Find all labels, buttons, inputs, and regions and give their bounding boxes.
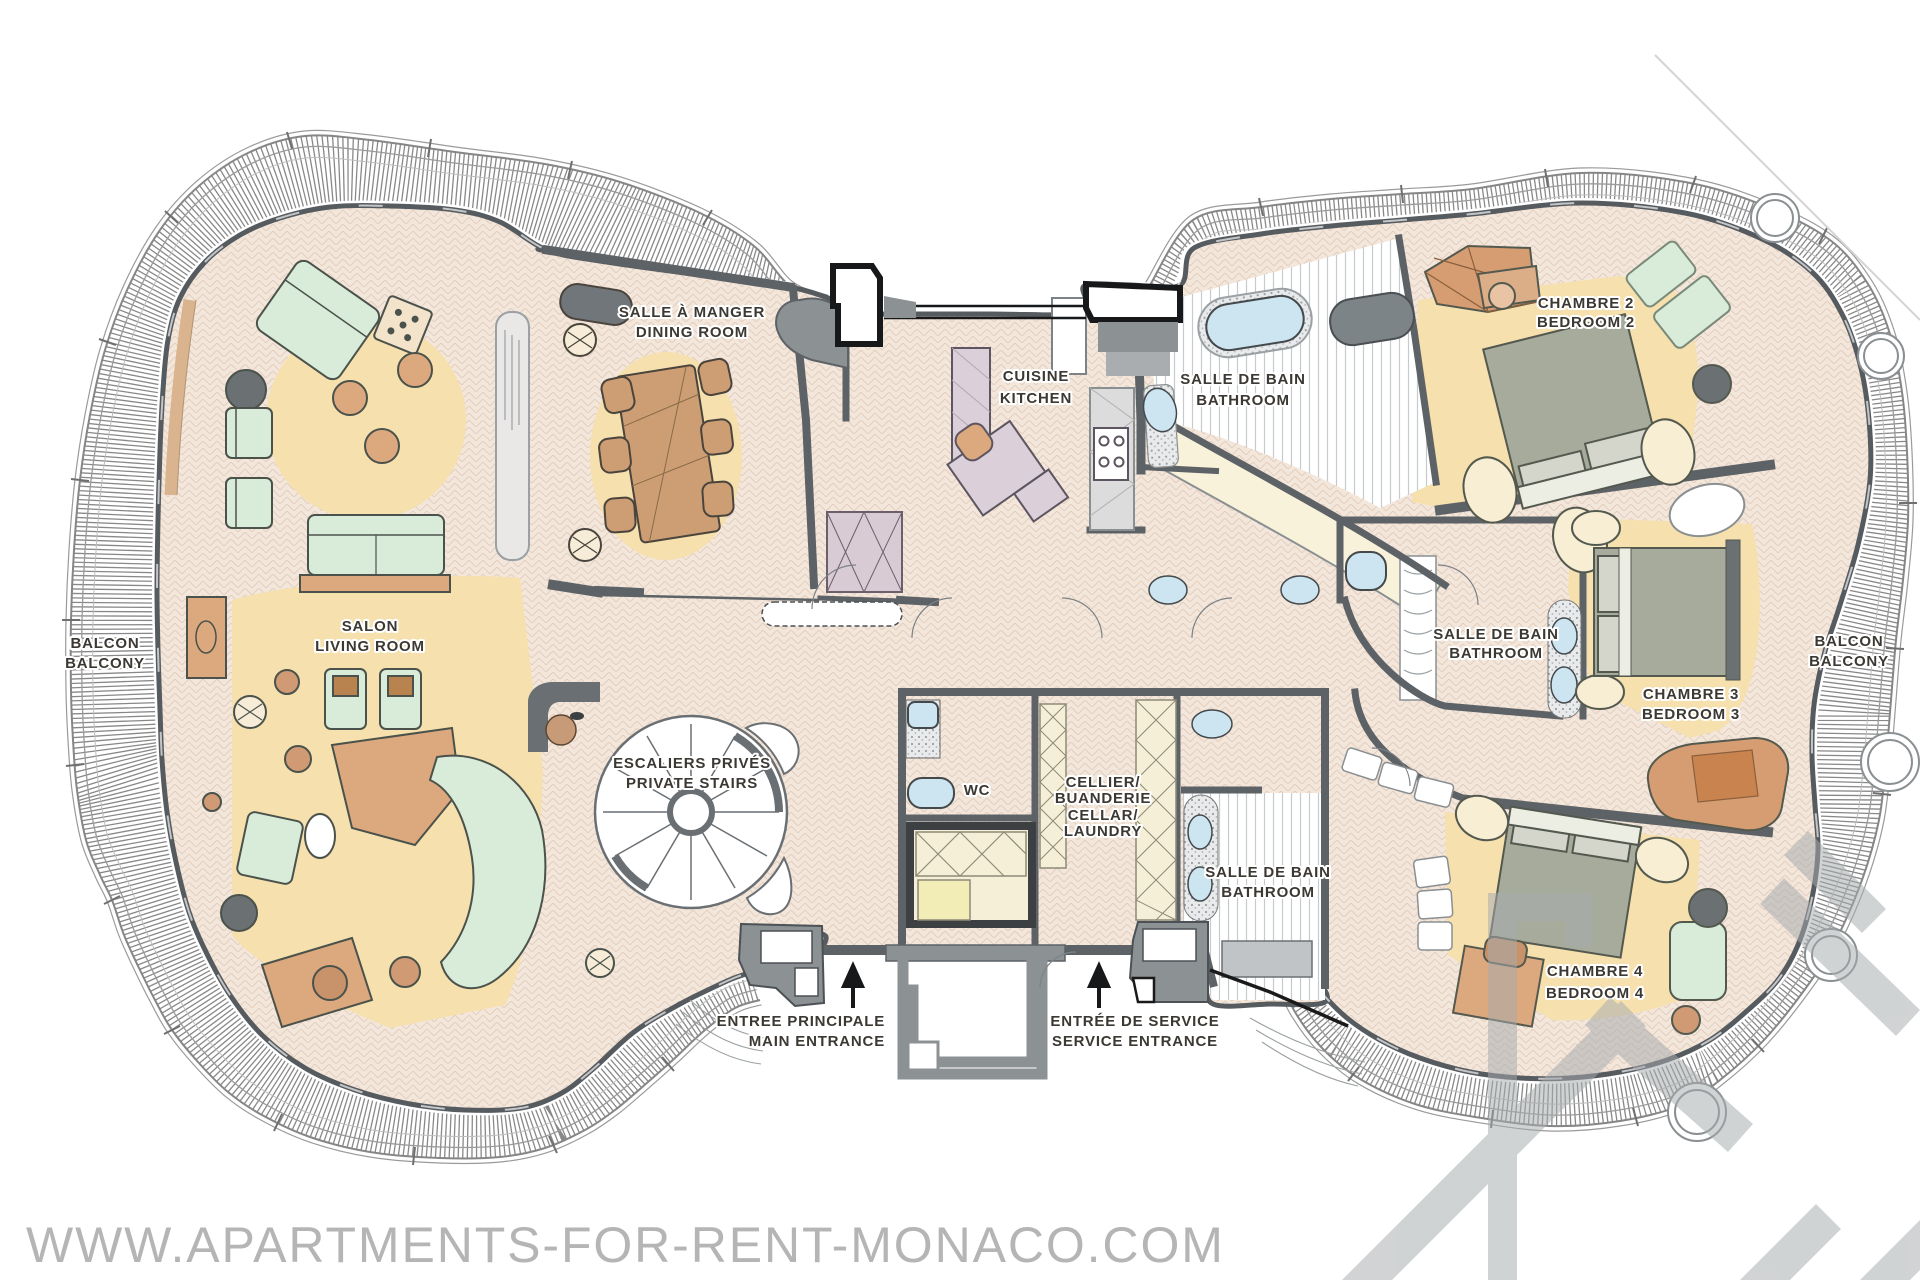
svg-text:CUISINE: CUISINE bbox=[1003, 368, 1069, 385]
svg-text:ENTRÉE DE SERVICE: ENTRÉE DE SERVICE bbox=[1050, 1013, 1219, 1030]
svg-text:ENTREE PRINCIPALE: ENTREE PRINCIPALE bbox=[717, 1013, 885, 1030]
svg-text:SALLE DE BAIN: SALLE DE BAIN bbox=[1205, 864, 1330, 881]
svg-text:BUANDERIE: BUANDERIE bbox=[1055, 790, 1151, 807]
svg-text:DINING ROOM: DINING ROOM bbox=[636, 324, 748, 341]
svg-text:BALCONY: BALCONY bbox=[65, 655, 145, 672]
svg-text:ESCALIERS PRIVÉS: ESCALIERS PRIVÉS bbox=[613, 755, 771, 772]
svg-text:CHAMBRE 4: CHAMBRE 4 bbox=[1547, 963, 1643, 980]
svg-text:BEDROOM 4: BEDROOM 4 bbox=[1546, 985, 1644, 1002]
svg-text:MAIN ENTRANCE: MAIN ENTRANCE bbox=[749, 1033, 885, 1050]
svg-text:CELLIER/: CELLIER/ bbox=[1066, 774, 1141, 791]
svg-text:BALCONY: BALCONY bbox=[1809, 653, 1889, 670]
svg-text:SERVICE ENTRANCE: SERVICE ENTRANCE bbox=[1052, 1033, 1218, 1050]
svg-text:BEDROOM 2: BEDROOM 2 bbox=[1537, 314, 1635, 331]
svg-text:CHAMBRE 3: CHAMBRE 3 bbox=[1643, 686, 1739, 703]
svg-text:SALLE À MANGER: SALLE À MANGER bbox=[619, 304, 765, 321]
svg-text:BALCON: BALCON bbox=[71, 635, 140, 652]
svg-text:CELLAR/: CELLAR/ bbox=[1068, 807, 1139, 824]
svg-text:CHAMBRE 2: CHAMBRE 2 bbox=[1538, 295, 1634, 312]
svg-text:SALON: SALON bbox=[342, 618, 399, 635]
svg-text:BATHROOM: BATHROOM bbox=[1196, 392, 1290, 409]
svg-text:LAUNDRY: LAUNDRY bbox=[1064, 823, 1142, 840]
svg-text:KITCHEN: KITCHEN bbox=[1000, 390, 1072, 407]
svg-text:WC: WC bbox=[964, 782, 991, 799]
svg-text:LIVING ROOM: LIVING ROOM bbox=[315, 638, 425, 655]
svg-text:BEDROOM 3: BEDROOM 3 bbox=[1642, 706, 1740, 723]
svg-text:SALLE DE BAIN: SALLE DE BAIN bbox=[1180, 371, 1305, 388]
svg-text:BATHROOM: BATHROOM bbox=[1449, 645, 1543, 662]
svg-text:BALCON: BALCON bbox=[1815, 633, 1884, 650]
svg-text:WWW.APARTMENTS-FOR-RENT-MONACO: WWW.APARTMENTS-FOR-RENT-MONACO.COM bbox=[26, 1217, 1225, 1273]
svg-text:PRIVATE STAIRS: PRIVATE STAIRS bbox=[626, 775, 758, 792]
svg-text:SALLE DE BAIN: SALLE DE BAIN bbox=[1433, 626, 1558, 643]
svg-text:BATHROOM: BATHROOM bbox=[1221, 884, 1315, 901]
